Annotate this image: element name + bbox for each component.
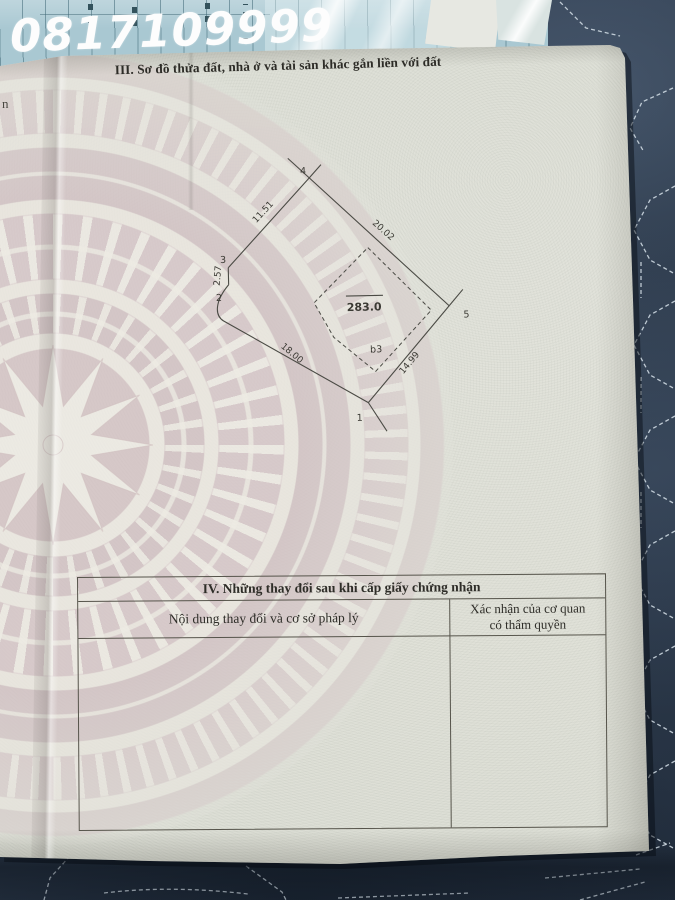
building-label: b3	[370, 344, 382, 355]
paper-scrap	[496, 0, 552, 45]
column-header-content: Nội dung thay đổi và cơ sở pháp lý	[78, 599, 450, 639]
column-header-authority-line1: Xác nhận của cơ quan	[470, 600, 585, 617]
drum-star-icon	[0, 335, 163, 555]
vertex-label-5: 5	[463, 309, 469, 320]
paper-scrap	[425, 0, 501, 52]
page-fragment-text: n	[2, 96, 9, 112]
vertex-label-4: 4	[300, 166, 306, 177]
vertex-label-3: 3	[220, 255, 226, 266]
parcel-diagram: B 4 3 2 1 5 11.51 20.02 2.57 18.00 14.99…	[181, 56, 520, 453]
dimension-2-3: 2.57	[213, 265, 225, 286]
area-label: 283.0	[347, 300, 382, 314]
dimension-3-4: 11.51	[251, 200, 276, 226]
column-header-authority-line2: có thẩm quyền	[490, 617, 567, 634]
changes-table: IV. Những thay đổi sau khi cấp giấy chứn…	[77, 573, 608, 831]
vertex-label-2: 2	[216, 293, 222, 304]
certificate-page: n III. Sơ đồ thửa đất, nhà ở và tài sản …	[0, 0, 675, 900]
column-header-authority: Xác nhận của cơ quan có thẩm quyền	[450, 598, 605, 636]
dimension-4-5: 20.02	[370, 218, 396, 243]
vertex-label-1: 1	[357, 413, 363, 424]
certificate-photo: n III. Sơ đồ thửa đất, nhà ở và tài sản …	[0, 0, 675, 900]
table-title: IV. Những thay đổi sau khi cấp giấy chứn…	[78, 574, 605, 602]
table-body-right-cell	[450, 635, 606, 827]
table-body-left-cell	[78, 636, 451, 830]
